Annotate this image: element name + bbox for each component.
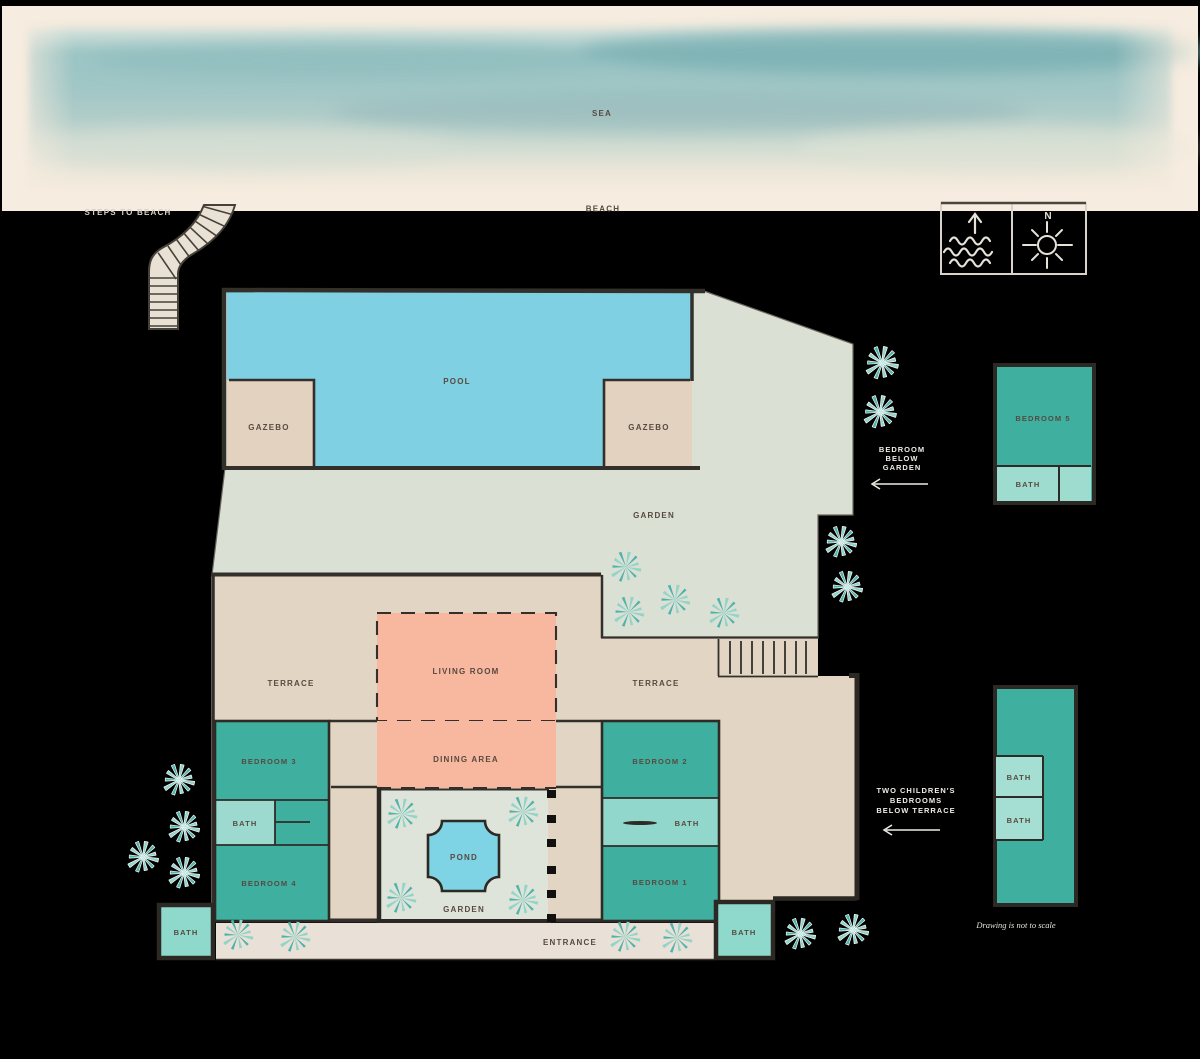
svg-text:TERRACE: TERRACE (267, 679, 314, 688)
svg-text:GARDEN: GARDEN (443, 905, 485, 914)
svg-text:BEACH: BEACH (586, 205, 620, 214)
svg-text:BATH: BATH (1007, 816, 1032, 825)
svg-text:BEDROOM 4: BEDROOM 4 (241, 879, 296, 888)
svg-text:BATH: BATH (732, 928, 757, 937)
svg-text:BEDROOMS: BEDROOMS (890, 796, 942, 805)
svg-text:BEDROOM 3: BEDROOM 3 (241, 757, 296, 766)
svg-text:ENTRANCE: ENTRANCE (543, 938, 597, 947)
svg-text:Drawing is not to scale: Drawing is not to scale (975, 920, 1056, 930)
svg-text:BEDROOM 1: BEDROOM 1 (632, 878, 687, 887)
svg-text:TWO CHILDREN'S: TWO CHILDREN'S (876, 786, 955, 795)
svg-text:BEDROOM 5: BEDROOM 5 (1015, 414, 1070, 423)
svg-text:GAZEBO: GAZEBO (248, 423, 289, 432)
svg-text:STEPS TO BEACH: STEPS TO BEACH (85, 208, 172, 217)
svg-text:BATH: BATH (1007, 773, 1032, 782)
svg-text:GARDEN: GARDEN (633, 511, 675, 520)
svg-text:BEDROOM: BEDROOM (879, 445, 925, 454)
svg-text:BATH: BATH (1016, 480, 1041, 489)
svg-text:GARDEN: GARDEN (883, 463, 922, 472)
svg-text:SEA: SEA (592, 109, 612, 118)
svg-text:BELOW: BELOW (886, 454, 919, 463)
svg-text:BEDROOM 2: BEDROOM 2 (632, 757, 687, 766)
svg-text:POND: POND (450, 853, 478, 862)
svg-text:POOL: POOL (443, 377, 470, 386)
svg-text:DINING AREA: DINING AREA (433, 755, 499, 764)
svg-text:GAZEBO: GAZEBO (628, 423, 669, 432)
svg-text:TERRACE: TERRACE (632, 679, 679, 688)
svg-text:N: N (1044, 211, 1051, 222)
svg-text:BATH: BATH (233, 819, 258, 828)
svg-text:BELOW TERRACE: BELOW TERRACE (876, 806, 955, 815)
svg-text:BATH: BATH (174, 928, 199, 937)
svg-text:BATH: BATH (675, 819, 700, 828)
svg-text:LIVING ROOM: LIVING ROOM (433, 667, 500, 676)
